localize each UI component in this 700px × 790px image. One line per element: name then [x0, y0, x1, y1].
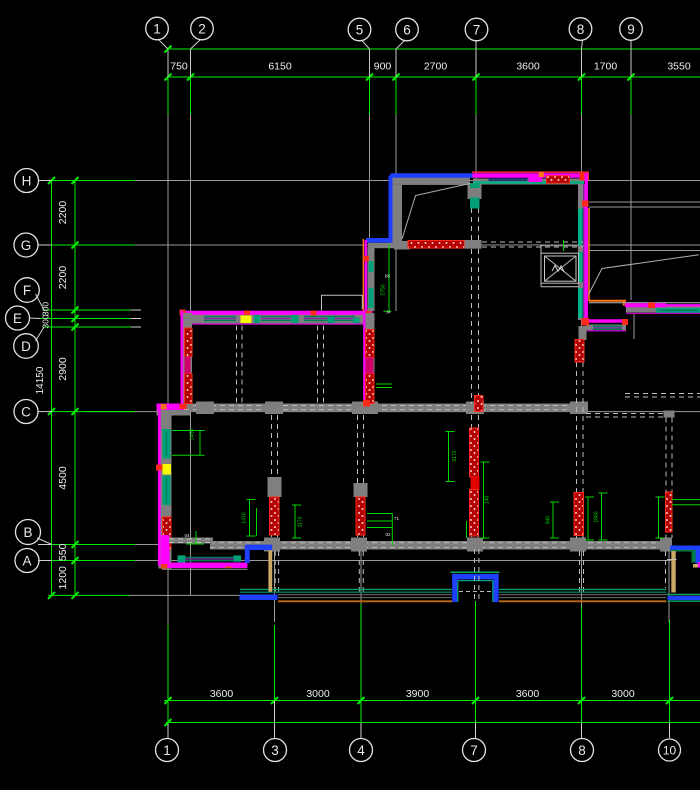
svg-text:D: D: [21, 339, 31, 354]
svg-text:3900: 3900: [406, 688, 430, 700]
svg-text:1450: 1450: [190, 428, 196, 440]
svg-text:3000: 3000: [306, 688, 330, 700]
svg-text:J4: J4: [386, 310, 391, 315]
svg-text:940: 940: [546, 516, 552, 525]
svg-text:2200: 2200: [57, 266, 69, 290]
svg-text:04: 04: [184, 533, 190, 538]
svg-text:1470: 1470: [242, 512, 248, 523]
svg-text:71: 71: [394, 516, 400, 521]
svg-text:F: F: [23, 283, 31, 298]
svg-text:1: 1: [153, 21, 161, 36]
svg-text:7: 7: [470, 743, 478, 758]
svg-text:9: 9: [627, 22, 635, 37]
svg-text:140: 140: [485, 496, 491, 505]
svg-text:3550: 3550: [667, 61, 691, 73]
svg-text:4500: 4500: [57, 466, 69, 490]
svg-text:2: 2: [198, 21, 206, 36]
svg-text:3000: 3000: [611, 688, 635, 700]
svg-text:3: 3: [271, 743, 279, 758]
svg-text:6: 6: [403, 22, 411, 37]
svg-text:1170: 1170: [298, 516, 304, 527]
svg-text:5170: 5170: [452, 450, 458, 461]
svg-text:3600: 3600: [210, 688, 234, 700]
svg-text:6150: 6150: [268, 61, 292, 73]
svg-text:2700: 2700: [424, 61, 448, 73]
svg-text:02: 02: [385, 532, 391, 537]
svg-text:8: 8: [577, 22, 585, 37]
svg-text:300: 300: [41, 302, 51, 316]
svg-text:1860: 1860: [594, 511, 600, 522]
svg-text:E: E: [13, 311, 22, 326]
svg-text:H: H: [22, 173, 32, 188]
svg-text:b5: b5: [385, 274, 391, 279]
svg-text:C: C: [21, 404, 31, 419]
svg-text:A: A: [22, 553, 31, 568]
svg-text:B: B: [23, 525, 32, 540]
svg-text:14150: 14150: [35, 366, 46, 394]
svg-text:3600: 3600: [516, 688, 540, 700]
svg-text:2750: 2750: [381, 284, 387, 295]
svg-text:1200: 1200: [57, 566, 69, 590]
svg-text:550: 550: [57, 543, 69, 561]
svg-text:7: 7: [473, 22, 481, 37]
svg-text:750: 750: [170, 61, 188, 73]
svg-text:G: G: [21, 238, 32, 253]
svg-text:4: 4: [357, 743, 365, 758]
svg-text:10: 10: [663, 743, 677, 757]
svg-text:2200: 2200: [57, 201, 69, 225]
svg-text:3600: 3600: [516, 61, 540, 73]
svg-text:1: 1: [163, 743, 171, 758]
svg-text:1700: 1700: [594, 61, 618, 73]
svg-text:5: 5: [356, 22, 364, 37]
svg-text:300: 300: [41, 314, 51, 328]
svg-text:900: 900: [374, 61, 392, 73]
svg-text:2900: 2900: [57, 357, 69, 381]
svg-text:8: 8: [578, 743, 586, 758]
